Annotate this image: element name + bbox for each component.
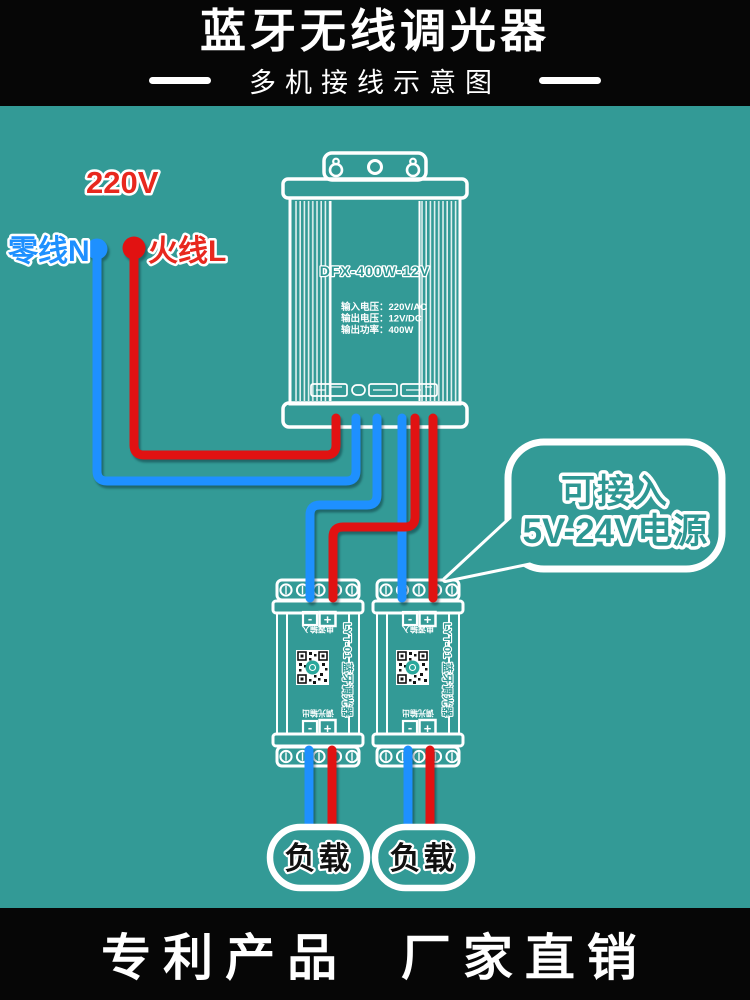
wiring-diagram: DFX-400W-12V 输入电压：220V/AC 输出电压：12V/DC 输出… (0, 0, 750, 1000)
live-label: 火线L (148, 235, 226, 268)
subtitle-dash-left (149, 77, 211, 84)
dimmer-top-screws (280, 584, 357, 595)
psu-keyhole-left-icon (330, 164, 342, 176)
psu-spec-power: 输出功率：400W (341, 324, 413, 336)
voltage-label: 220V (86, 165, 159, 200)
page-subtitle: 多机接线示意图 (249, 61, 501, 100)
dimmer-bottom-screws (280, 751, 357, 762)
psu-specs: 输入电压：220V/AC 输出电压：12V/DC 输出功率：400W (341, 301, 427, 336)
speech-bubble: 可接入 5V-24V电源 (445, 442, 722, 580)
psu-keyhole-right-icon (407, 164, 419, 176)
load2-label: 负载 (390, 841, 458, 876)
load1-label: 负载 (285, 841, 353, 876)
dimmer-input-minus-label: - (308, 611, 312, 626)
neutral-label: 零线N (8, 235, 90, 268)
dimmer-device-1: - + 电源输入 (273, 580, 363, 766)
dimmer-model-text: LYT-01 蓝牙调光器 (341, 623, 354, 718)
subtitle-dash-right (539, 77, 601, 84)
dimmer-bottom-bar (273, 734, 363, 746)
load-1: 负载 (270, 827, 367, 888)
live-wire-dot (123, 237, 146, 260)
page: 蓝牙无线调光器 多机接线示意图 (0, 0, 750, 1000)
dimmer-left-rail (277, 613, 287, 734)
wire-output-negative-dimmer1 (310, 418, 377, 598)
psu-top-bar (283, 179, 467, 198)
footer-banner: 专利产品 厂家直销 (0, 908, 750, 1000)
qr-code (296, 650, 329, 685)
dimmer-output-text: 调光输出 (302, 709, 334, 719)
power-supply-unit: DFX-400W-12V 输入电压：220V/AC 输出电压：12V/DC 输出… (283, 153, 467, 427)
psu-vent-left (294, 201, 330, 401)
subtitle-row: 多机接线示意图 (149, 61, 601, 100)
bubble-line1: 可接入 (561, 473, 669, 511)
psu-vent-right (421, 201, 457, 401)
dimmer-input-text: 电源输入 (302, 625, 334, 635)
psu-spec-input: 输入电压：220V/AC (341, 301, 427, 313)
footer-slogan: 专利产品 厂家直销 (101, 918, 649, 990)
bubble-line2: 5V-24V电源 (523, 512, 708, 551)
page-title: 蓝牙无线调光器 (200, 6, 550, 57)
psu-spec-output: 输出电压：12V/DC (341, 313, 422, 325)
psu-mount-hole-icon (369, 161, 382, 174)
psu-model-text: DFX-400W-12V (320, 263, 431, 279)
dimmer-device-2 (373, 580, 463, 766)
header-banner: 蓝牙无线调光器 多机接线示意图 (0, 0, 750, 106)
load-2: 负载 (375, 827, 472, 888)
